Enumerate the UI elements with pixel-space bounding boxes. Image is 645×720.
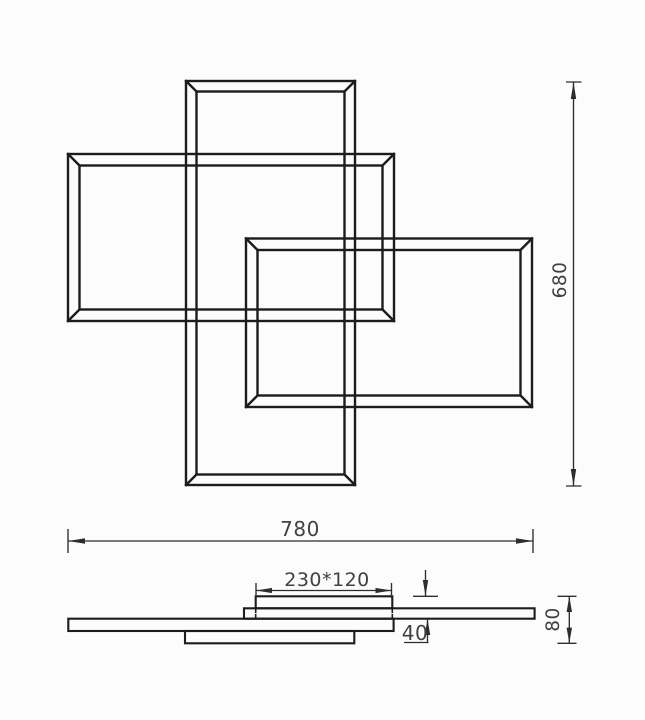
arrow-left-icon [68,538,85,543]
frame-vertical-inner-edge [197,92,345,475]
arrow-right-icon [516,538,533,543]
arrow-up-icon [571,82,576,99]
top-view-frames [68,81,532,485]
frame-right-inner-edge [258,250,521,396]
dim-canopy-drop-label: 40 [402,621,428,645]
drawing-sheet: 780 680 230*120 40 80 [0,0,645,720]
canopy-profile [256,596,393,608]
arrow-down-icon [423,580,428,596]
vertical-frame-profile-bar [185,631,354,643]
left-frame-profile-bar [68,619,393,631]
arrow-left-icon [256,588,272,593]
arrow-down-icon [567,628,572,644]
dim-canopy-size-label: 230*120 [284,569,370,591]
frame-vertical-miter-joints [186,81,355,485]
dim-overall-height-label: 680 [550,262,571,299]
canopy-hidden-edges [256,608,393,618]
frame-vertical-outer-edge [186,81,355,485]
frame-right-miter-joints [246,239,532,408]
frame-right-horizontal [246,239,532,408]
arrow-right-icon [376,588,392,593]
arrow-down-icon [571,469,576,486]
arrow-up-icon [567,596,572,612]
right-frame-profile-bar [244,608,535,618]
side-profile-view [68,596,534,643]
dim-profile-height-label: 80 [543,607,564,632]
dim-overall-width-label: 780 [280,517,320,541]
technical-drawing-canvas: 780 680 230*120 40 80 [0,0,645,720]
frame-right-outer-edge [246,239,532,408]
frame-vertical [186,81,355,485]
